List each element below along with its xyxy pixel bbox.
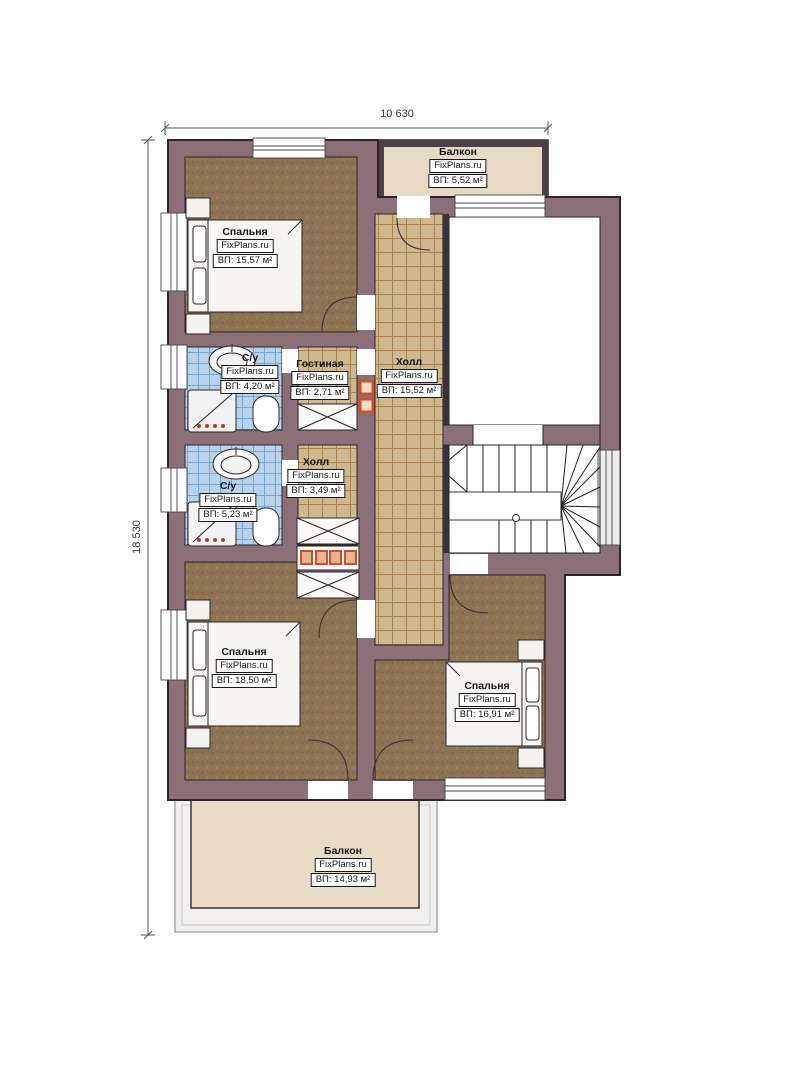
watermark-badge: FixPlans.ru [287,469,345,483]
room-label-balcony-bottom: Балкон FixPlans.ru ВП: 14,93 м² [311,845,376,887]
room-name-label: Спальня [221,646,266,658]
room-label-living-room: Гостиная FixPlans.ru ВП: 2,71 м² [290,358,349,400]
pillow-icon [193,630,206,670]
room-name-label: Холл [396,356,422,368]
hall-small-wardrobes [297,518,359,598]
living-room-wardrobe [298,404,357,430]
room-label-balcony-top: Балкон FixPlans.ru ВП: 5,52 м² [428,146,487,188]
room-area-badge: ВП: 14,93 м² [311,873,376,887]
room-area-badge: ВП: 3,49 м² [286,484,345,498]
room-name-label: Балкон [324,845,362,857]
hall-main-floor [375,214,443,645]
room-label-hall-small: Холл FixPlans.ru ВП: 3,49 м² [286,456,345,498]
window-void-room-north [455,195,545,217]
room-area-badge: ВП: 18,50 м² [212,674,277,688]
window-staircase-east [598,450,620,545]
watermark-badge: FixPlans.ru [314,858,372,872]
watermark-badge: FixPlans.ru [429,159,487,173]
vent-icon [360,381,373,394]
room-name-label: С/у [242,352,258,364]
watermark-badge: FixPlans.ru [458,693,516,707]
room-label-bathroom-top: С/у FixPlans.ru ВП: 4,20 м² [220,352,279,394]
room-name-label: Спальня [222,226,267,238]
stair-landing-gap [473,425,543,447]
nightstand-icon [186,314,210,334]
watermark-badge: FixPlans.ru [291,371,349,385]
window-bedroom-top-west [161,213,187,291]
pillow-icon [526,706,539,740]
room-name-label: Спальня [464,680,509,692]
window-bathroom-bottom-west [161,468,187,512]
pillow-icon [526,668,539,702]
room-name-label: Холл [303,456,329,468]
room-label-bedroom-bottom-left: Спальня FixPlans.ru ВП: 18,50 м² [212,646,277,688]
window-bathroom-top-west [161,345,187,389]
room-area-badge: ВП: 16,91 м² [455,708,520,722]
room-area-badge: ВП: 2,71 м² [290,386,349,400]
dimension-width-label: 10 630 [380,108,414,120]
watermark-badge: FixPlans.ru [221,365,279,379]
room-label-hall-main: Холл FixPlans.ru ВП: 15,52 м² [377,356,442,398]
void-room-wall-left [443,214,449,553]
window-bedroom-bottom-right-south [445,778,545,800]
balcony-bottom-structure [175,798,437,932]
watermark-badge: FixPlans.ru [199,493,257,507]
vent-icon [360,399,373,412]
pillow-icon [193,226,206,262]
window-bedroom-bottom-left-west [161,610,187,680]
dimension-height-label: 18 530 [131,520,143,554]
room-area-badge: ВП: 4,20 м² [220,380,279,394]
room-area-badge: ВП: 15,52 м² [377,384,442,398]
room-area-badge: ВП: 15,57 м² [213,254,278,268]
nightstand-icon [186,728,210,748]
toilet-icon [253,396,279,432]
room-label-bedroom-top: Спальня FixPlans.ru ВП: 15,57 м² [213,226,278,268]
nightstand-icon [518,640,544,660]
watermark-badge: FixPlans.ru [380,369,438,383]
void-room-floor [449,217,600,425]
room-label-bedroom-bottom-right: Спальня FixPlans.ru ВП: 16,91 м² [455,680,520,722]
room-name-label: Гостиная [296,358,343,370]
floor-plan-page: 10 630 18 530 Балкон FixPlans.ru ВП: 5,5… [0,0,792,1080]
nightstand-icon [186,198,210,218]
pillow-icon [193,676,206,716]
room-name-label: Балкон [439,146,477,158]
nightstand-icon [186,600,210,620]
pillow-icon [193,268,206,304]
watermark-badge: FixPlans.ru [216,239,274,253]
watermark-badge: FixPlans.ru [215,659,273,673]
nightstand-icon [518,748,544,768]
room-name-label: С/у [220,480,236,492]
window-bedroom-top-north [253,138,325,158]
room-label-bathroom-bottom: С/у FixPlans.ru ВП: 5,23 м² [198,480,257,522]
floor-plan-drawing [0,0,792,1080]
room-area-badge: ВП: 5,23 м² [198,508,257,522]
room-area-badge: ВП: 5,52 м² [428,174,487,188]
